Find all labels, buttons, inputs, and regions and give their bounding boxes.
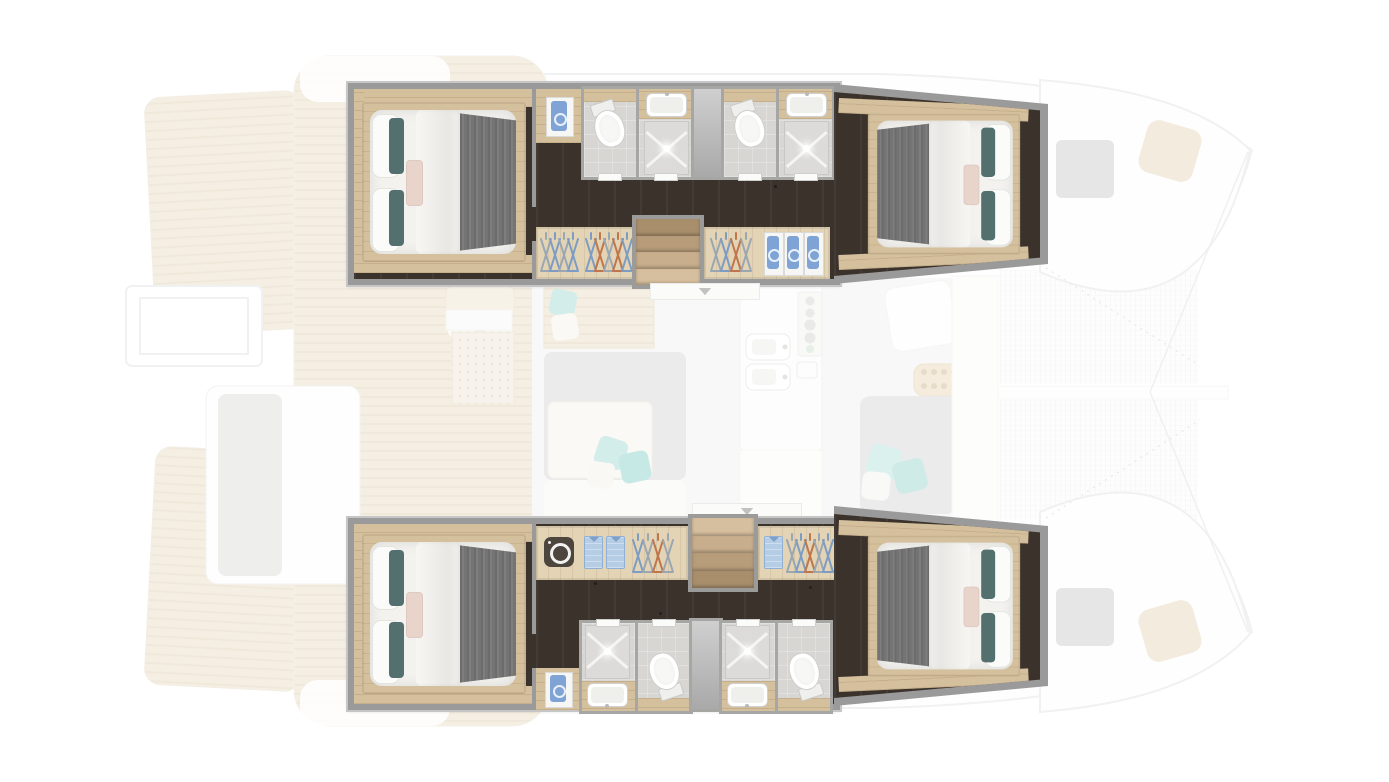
blush-pillow [964, 165, 980, 205]
wardrobe-aft [536, 227, 634, 279]
toilet-room [724, 89, 776, 177]
blush-pillow [406, 160, 423, 206]
nav-desk [446, 310, 512, 330]
white-pillow [550, 312, 579, 341]
door-opening [794, 173, 818, 181]
wardrobe-aft [536, 526, 688, 580]
deck-hatch-top [1056, 140, 1114, 198]
teal-pillow [981, 191, 995, 240]
shower-tray [784, 121, 829, 175]
nav-perforated-panel [452, 332, 514, 404]
folded-shirt [764, 536, 783, 569]
teal-pillow [389, 622, 404, 678]
shower-tray [725, 625, 770, 679]
technical-space [692, 621, 720, 709]
burner [806, 345, 814, 353]
top-aft-bathroom [584, 89, 692, 177]
burner [806, 309, 815, 318]
blue-towel [767, 236, 779, 269]
teal-pillow [389, 550, 404, 606]
burner [806, 297, 815, 306]
bow-walkway [952, 276, 998, 524]
cabin-floor [834, 92, 1040, 276]
blue-towel [787, 236, 799, 269]
shower-tray [644, 121, 689, 175]
washbasin [727, 683, 768, 707]
faucet [783, 375, 788, 380]
clothes-hangers [630, 532, 682, 576]
wardrobe-forward [758, 526, 836, 580]
teal-pillow [981, 613, 995, 662]
folded-shirt [584, 536, 603, 569]
burner [805, 320, 816, 331]
shower-drain-highlight [663, 145, 670, 152]
cup-hole [921, 369, 927, 375]
door-opening [792, 619, 816, 627]
toilet [726, 98, 771, 157]
linen-cabinet [536, 89, 584, 143]
bottom-forward-cabin [834, 506, 1048, 706]
washbasin [587, 683, 628, 707]
top-forward-cabin [834, 84, 1048, 284]
shower-room [722, 623, 775, 711]
partition-wall [775, 623, 778, 711]
bottom-hull-walls [348, 518, 840, 710]
shower-tray [585, 625, 630, 679]
throw-blanket [460, 112, 516, 252]
toilet [644, 644, 689, 703]
clothes-hangers [784, 532, 836, 576]
galley-sink-basin [752, 339, 776, 355]
stair-step [636, 236, 700, 253]
side-bench-pad [218, 394, 282, 576]
toilet [586, 98, 631, 157]
stair-step [636, 252, 700, 269]
door-opening [596, 619, 620, 627]
stair-step [692, 571, 754, 589]
cup-hole [931, 383, 937, 389]
chevron-icon [741, 508, 753, 515]
door-opening [738, 173, 762, 181]
door-opening [654, 173, 678, 181]
bottom-hull-interior [348, 492, 1050, 714]
folded-shirt [606, 536, 625, 569]
double-bed [362, 102, 526, 262]
clothes-hangers [538, 231, 634, 275]
salon-threshold [650, 283, 760, 300]
shower-room [779, 89, 832, 177]
washing-machine-icon [544, 537, 574, 567]
faucet [783, 345, 788, 350]
bottom-aft-cabin [348, 518, 536, 710]
blue-towel [807, 236, 819, 269]
deck-hatch-bottom [1056, 588, 1114, 646]
clothes-hangers [708, 231, 760, 275]
cup-hole [941, 369, 947, 375]
top-forward-bathroom [724, 89, 832, 177]
toilet-room [584, 89, 636, 177]
white-pillow [586, 460, 615, 489]
spine-beam [998, 386, 1228, 399]
stair-step [692, 518, 754, 536]
teal-pillow [389, 118, 404, 174]
blue-towel [550, 675, 566, 702]
double-bed [868, 114, 1021, 255]
galley-sink-basin [752, 369, 776, 385]
cabin-floor [834, 514, 1040, 698]
door-opening [736, 619, 760, 627]
stair-step [636, 219, 700, 236]
throw-blanket [460, 544, 516, 684]
technical-space [694, 89, 722, 177]
door-opening [652, 619, 676, 627]
toilet [784, 644, 829, 703]
double-bed [868, 536, 1021, 677]
blush-pillow [964, 587, 980, 627]
teal-pillow [981, 550, 995, 599]
throw-blanket [877, 544, 929, 667]
teal-pillow [389, 190, 404, 246]
wardrobe-forward [704, 227, 830, 279]
catamaran-floorplan [0, 0, 1389, 782]
toilet-room [778, 623, 830, 711]
washbasin [646, 93, 687, 117]
shower-room [582, 623, 635, 711]
cup-hole [921, 383, 927, 389]
companionway-stairs [636, 219, 700, 285]
throw-blanket [877, 122, 929, 245]
stair-step [692, 536, 754, 554]
bottom-forward-bathroom [722, 623, 830, 711]
top-hull-walls [348, 83, 840, 285]
top-aft-cabin [348, 83, 536, 285]
double-bed [362, 534, 526, 694]
shower-drain-highlight [803, 145, 810, 152]
door-opening [598, 173, 622, 181]
chevron-icon [699, 288, 711, 295]
companionway-stairs [692, 518, 754, 588]
teal-pillow [981, 128, 995, 177]
stair-step [692, 553, 754, 571]
bottom-aft-bathroom [582, 623, 690, 711]
aqua-pillow [617, 449, 653, 485]
blush-pillow [406, 592, 423, 638]
partition-wall [635, 623, 638, 711]
cup-hole [941, 383, 947, 389]
shower-room [639, 89, 692, 177]
washbasin [786, 93, 827, 117]
linen-cabinet [536, 668, 580, 710]
toilet-room [638, 623, 690, 711]
top-hull-interior [348, 80, 1050, 294]
cup-hole [931, 369, 937, 375]
blue-towel [551, 101, 567, 131]
burner [805, 333, 816, 344]
